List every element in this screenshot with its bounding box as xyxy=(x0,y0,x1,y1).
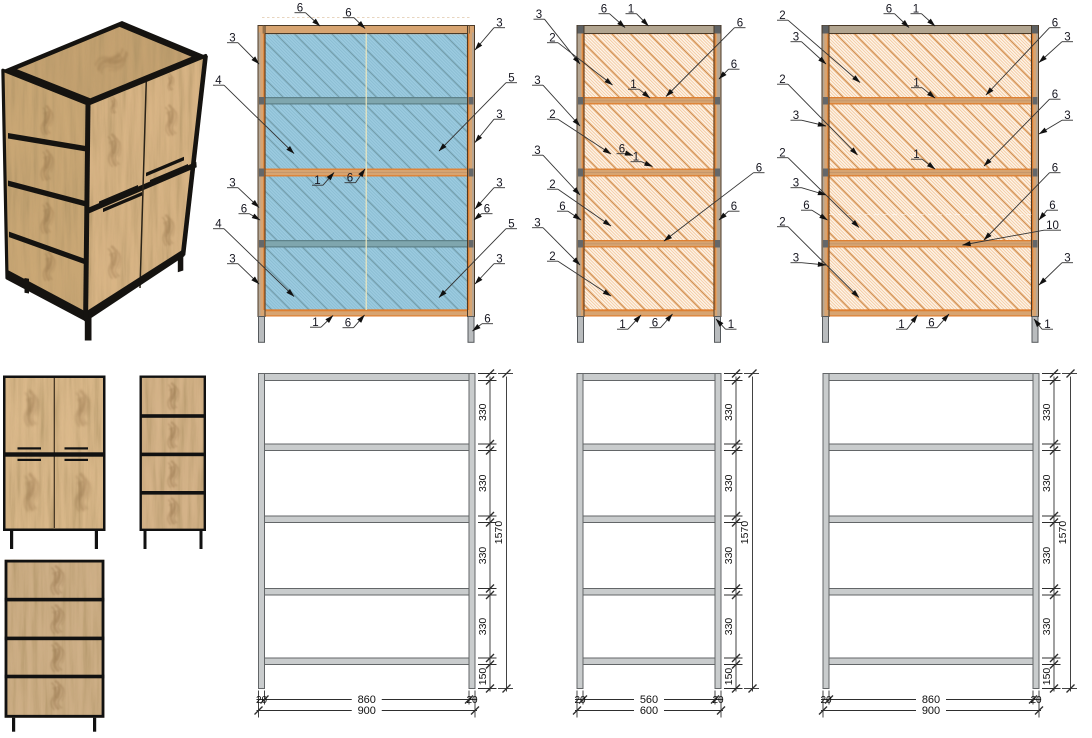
svg-text:150: 150 xyxy=(723,668,735,686)
svg-text:20: 20 xyxy=(712,695,724,706)
svg-text:330: 330 xyxy=(1041,618,1053,636)
svg-text:20: 20 xyxy=(256,695,268,706)
svg-text:330: 330 xyxy=(723,618,735,636)
svg-text:1570: 1570 xyxy=(1057,521,1069,545)
svg-text:1570: 1570 xyxy=(493,521,505,545)
svg-text:900: 900 xyxy=(358,705,376,717)
svg-text:330: 330 xyxy=(723,403,735,421)
svg-text:330: 330 xyxy=(723,547,735,565)
svg-text:330: 330 xyxy=(1041,403,1053,421)
svg-text:330: 330 xyxy=(1041,474,1053,492)
svg-text:1570: 1570 xyxy=(739,521,751,545)
svg-text:20: 20 xyxy=(820,695,832,706)
svg-text:330: 330 xyxy=(477,618,489,636)
svg-text:330: 330 xyxy=(477,547,489,565)
svg-text:330: 330 xyxy=(477,403,489,421)
svg-text:20: 20 xyxy=(466,695,478,706)
svg-text:330: 330 xyxy=(477,474,489,492)
svg-text:150: 150 xyxy=(477,668,489,686)
svg-text:20: 20 xyxy=(574,695,586,706)
svg-text:900: 900 xyxy=(922,705,940,717)
svg-text:600: 600 xyxy=(640,705,658,717)
svg-text:330: 330 xyxy=(1041,547,1053,565)
svg-text:150: 150 xyxy=(1041,668,1053,686)
svg-text:330: 330 xyxy=(723,474,735,492)
svg-text:20: 20 xyxy=(1030,695,1042,706)
